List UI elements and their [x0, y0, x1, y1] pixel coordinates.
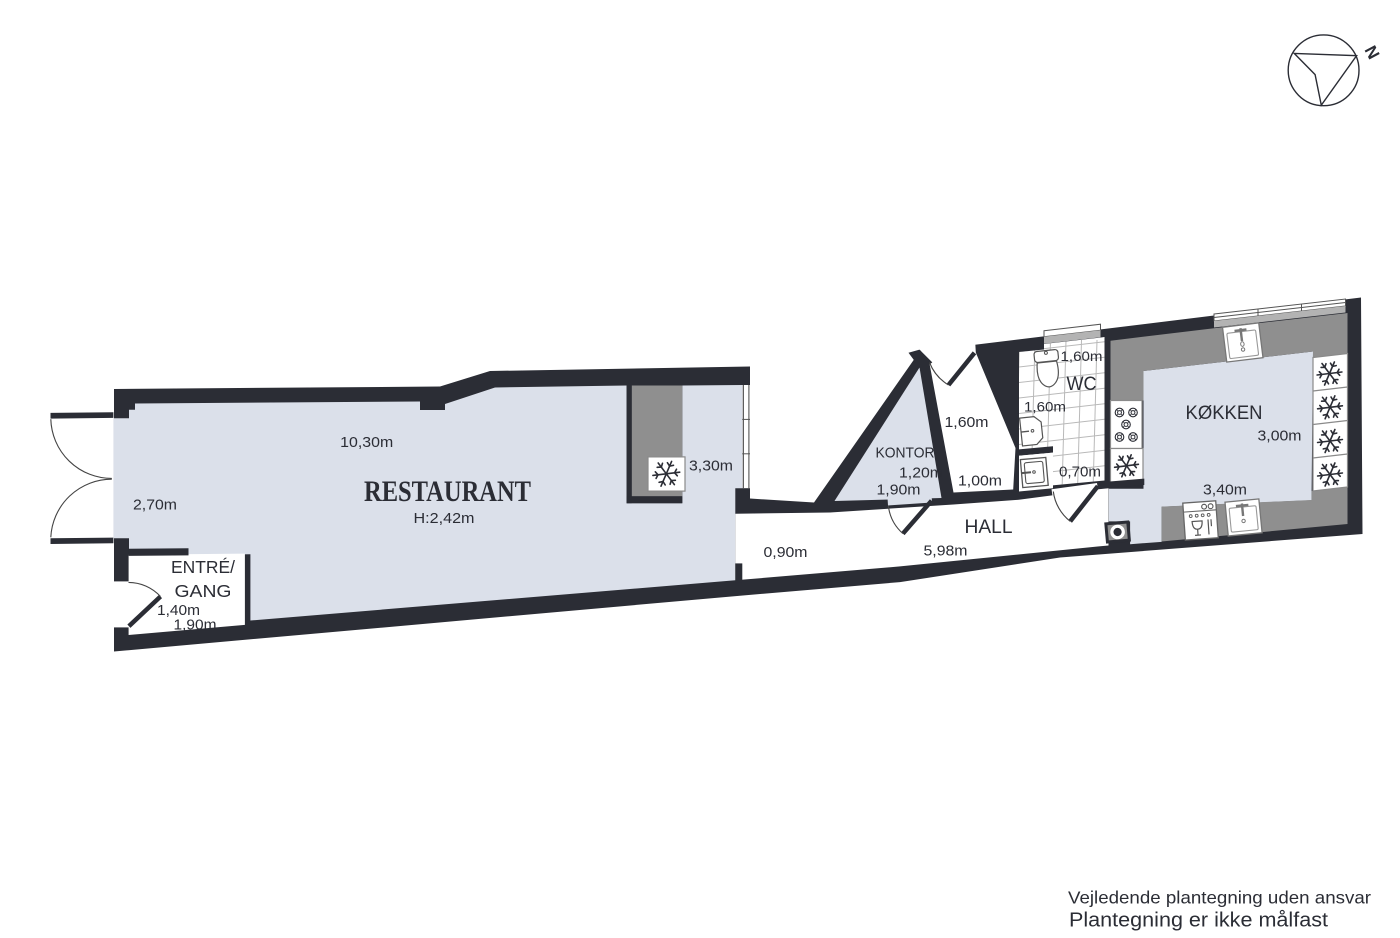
svg-text:10,30m: 10,30m	[340, 434, 393, 451]
svg-text:1,60m: 1,60m	[1061, 349, 1103, 364]
svg-text:KONTOR: KONTOR	[876, 445, 935, 462]
svg-text:2,70m: 2,70m	[133, 497, 177, 514]
svg-text:3,00m: 3,00m	[1258, 428, 1302, 445]
svg-text:GANG: GANG	[175, 581, 232, 601]
svg-text:HALL: HALL	[965, 517, 1013, 538]
svg-text:Plantegning er ikke målfast: Plantegning er ikke målfast	[1069, 910, 1328, 932]
svg-text:1,90m: 1,90m	[877, 482, 921, 499]
svg-text:0,90m: 0,90m	[764, 544, 808, 561]
svg-text:3,40m: 3,40m	[1203, 482, 1247, 499]
svg-text:H:2,42m: H:2,42m	[414, 510, 475, 527]
svg-text:1,60m: 1,60m	[1024, 399, 1066, 415]
svg-text:1,00m: 1,00m	[958, 473, 1002, 490]
svg-text:WC: WC	[1067, 374, 1097, 395]
svg-text:5,98m: 5,98m	[924, 543, 968, 560]
svg-text:1,60m: 1,60m	[945, 414, 989, 431]
svg-text:3,30m: 3,30m	[689, 458, 733, 475]
svg-text:0,70m: 0,70m	[1059, 465, 1101, 481]
svg-text:ENTRÉ/: ENTRÉ/	[171, 557, 235, 577]
svg-text:KØKKEN: KØKKEN	[1186, 403, 1263, 424]
svg-text:1,20m: 1,20m	[899, 465, 943, 482]
svg-text:RESTAURANT: RESTAURANT	[364, 475, 531, 508]
svg-text:Vejledende plantegning uden an: Vejledende plantegning uden ansvar	[1068, 888, 1371, 908]
svg-text:1,90m: 1,90m	[174, 618, 217, 634]
